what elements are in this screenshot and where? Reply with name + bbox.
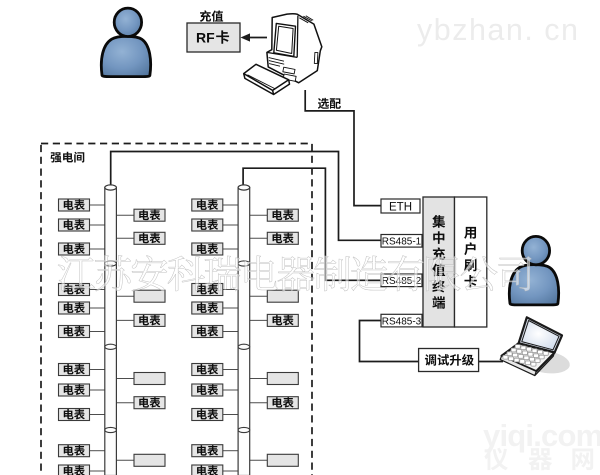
svg-text:RF: RF <box>196 30 215 46</box>
svg-text:yiqi.com: yiqi.com <box>483 418 600 453</box>
svg-text:RS485-1: RS485-1 <box>382 237 422 248</box>
svg-text:RS485-3: RS485-3 <box>382 316 422 327</box>
svg-text:ybzhan. cn: ybzhan. cn <box>417 13 580 47</box>
svg-text:ETH: ETH <box>389 202 412 214</box>
